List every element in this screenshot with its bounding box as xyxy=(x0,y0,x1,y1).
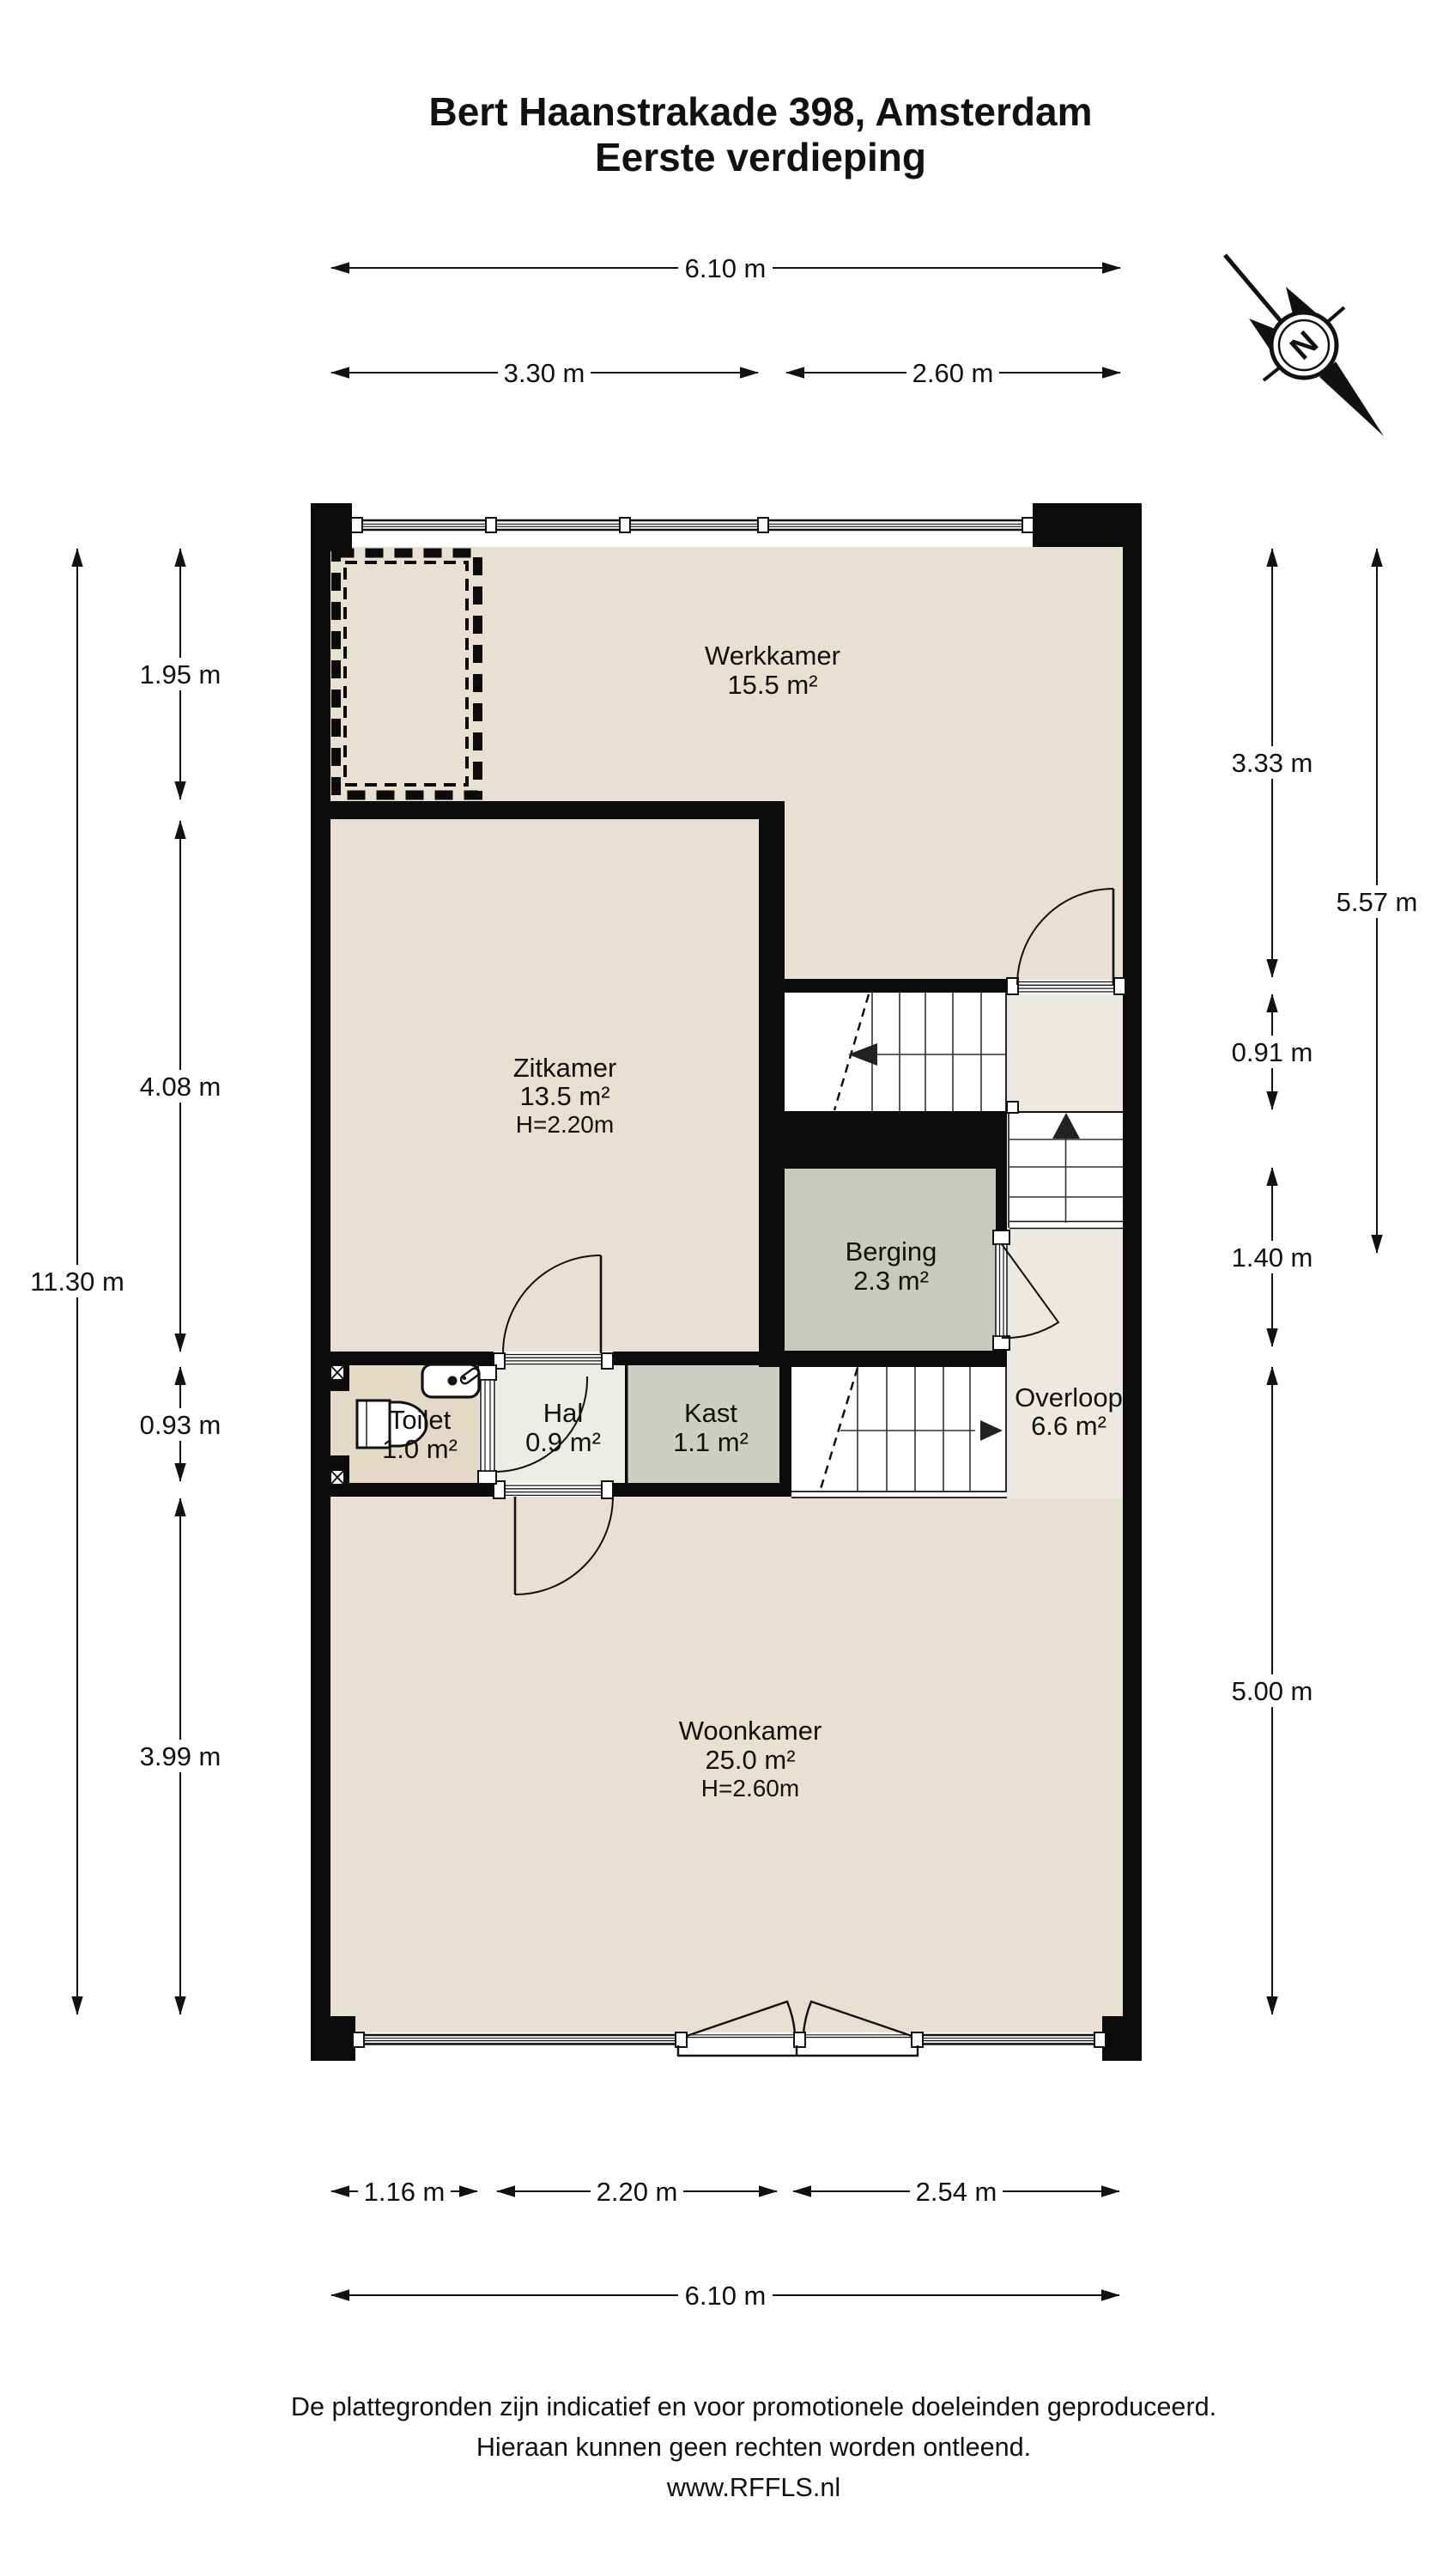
svg-text:www.RFFLS.nl: www.RFFLS.nl xyxy=(666,2473,840,2502)
svg-text:Hal: Hal xyxy=(543,1398,584,1428)
svg-text:Kast: Kast xyxy=(684,1398,737,1428)
svg-text:H=2.60m: H=2.60m xyxy=(701,1775,799,1801)
svg-text:Werkkamer: Werkkamer xyxy=(705,641,840,671)
svg-text:Bert Haanstrakade 398, Amsterd: Bert Haanstrakade 398, Amsterdam xyxy=(429,89,1093,134)
svg-text:6.10 m: 6.10 m xyxy=(685,2281,767,2311)
svg-text:Zitkamer: Zitkamer xyxy=(513,1053,617,1083)
svg-text:Overloop: Overloop xyxy=(1015,1382,1123,1413)
svg-text:3.30 m: 3.30 m xyxy=(504,358,585,388)
svg-text:1.1 m²: 1.1 m² xyxy=(673,1427,749,1457)
svg-text:4.08 m: 4.08 m xyxy=(140,1072,221,1102)
svg-text:13.5 m²: 13.5 m² xyxy=(519,1081,609,1111)
svg-text:11.30 m: 11.30 m xyxy=(30,1267,124,1297)
svg-text:3.33 m: 3.33 m xyxy=(1232,748,1313,778)
svg-text:2.60 m: 2.60 m xyxy=(912,358,994,388)
svg-text:6.10 m: 6.10 m xyxy=(685,253,767,283)
svg-text:Hieraan kunnen geen rechten wo: Hieraan kunnen geen rechten worden ontle… xyxy=(476,2433,1031,2462)
svg-text:3.99 m: 3.99 m xyxy=(140,1741,221,1771)
svg-text:Toilet: Toilet xyxy=(389,1405,452,1435)
svg-text:Woonkamer: Woonkamer xyxy=(679,1716,822,1746)
svg-text:0.91 m: 0.91 m xyxy=(1232,1037,1313,1067)
svg-text:25.0 m²: 25.0 m² xyxy=(705,1745,795,1775)
svg-text:2.3 m²: 2.3 m² xyxy=(853,1266,929,1296)
svg-text:2.20 m: 2.20 m xyxy=(597,2177,678,2207)
svg-text:2.54 m: 2.54 m xyxy=(916,2177,997,2207)
svg-text:0.93 m: 0.93 m xyxy=(140,1410,221,1440)
svg-text:Eerste verdieping: Eerste verdieping xyxy=(595,135,926,179)
svg-text:1.0 m²: 1.0 m² xyxy=(382,1434,458,1464)
svg-text:15.5 m²: 15.5 m² xyxy=(727,670,817,700)
svg-text:1.40 m: 1.40 m xyxy=(1232,1242,1313,1273)
svg-text:Berging: Berging xyxy=(846,1236,937,1267)
svg-text:De plattegronden zijn indicati: De plattegronden zijn indicatief en voor… xyxy=(291,2392,1216,2421)
svg-text:5.57 m: 5.57 m xyxy=(1337,887,1418,917)
svg-text:5.00 m: 5.00 m xyxy=(1232,1676,1313,1706)
svg-text:0.9 m²: 0.9 m² xyxy=(525,1427,601,1457)
svg-text:6.6 m²: 6.6 m² xyxy=(1031,1411,1106,1441)
svg-text:1.95 m: 1.95 m xyxy=(140,659,221,690)
svg-text:H=2.20m: H=2.20m xyxy=(516,1111,614,1138)
svg-text:1.16 m: 1.16 m xyxy=(364,2177,446,2207)
